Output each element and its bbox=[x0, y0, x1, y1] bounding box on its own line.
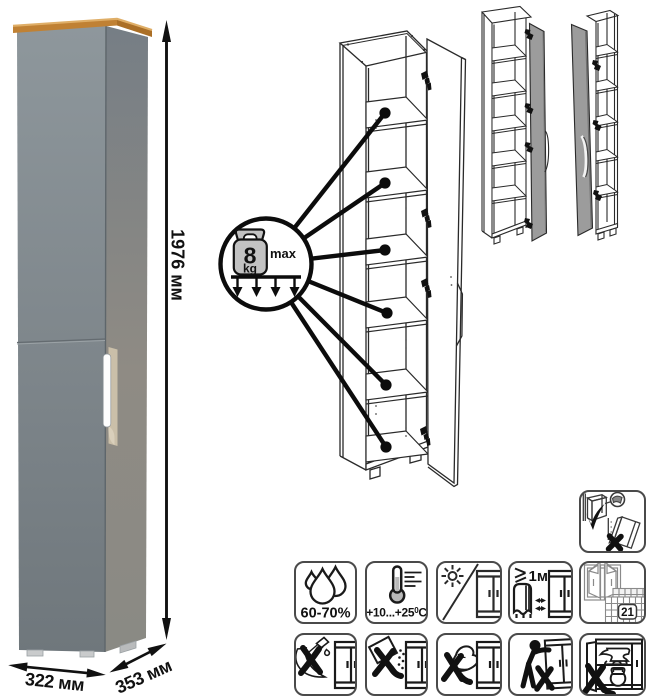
svg-text:21: 21 bbox=[621, 607, 634, 619]
svg-text:max: max bbox=[270, 246, 297, 261]
svg-text:1м: 1м bbox=[529, 568, 548, 585]
svg-text:60-70%: 60-70% bbox=[301, 606, 351, 622]
svg-text:1976 мм: 1976 мм bbox=[167, 229, 187, 301]
svg-text:kg: kg bbox=[243, 262, 257, 276]
svg-text:+10...+250C: +10...+250C bbox=[366, 606, 427, 620]
svg-text:353 мм: 353 мм bbox=[112, 655, 174, 697]
